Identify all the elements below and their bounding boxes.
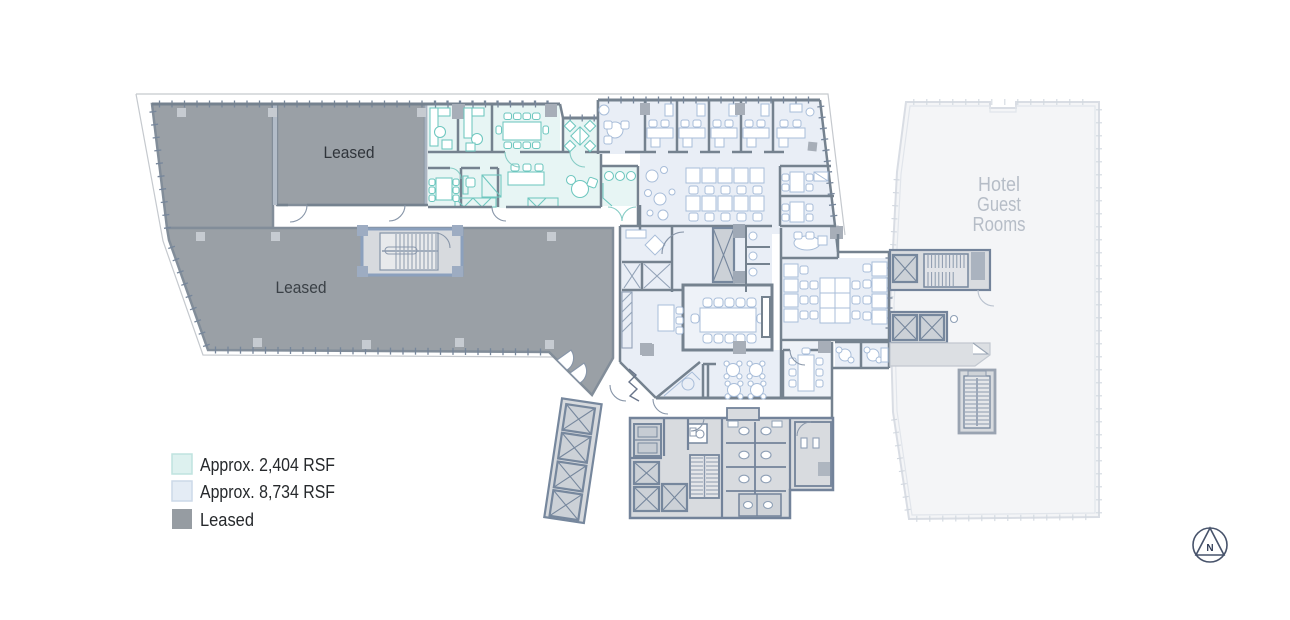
svg-text:Approx. 8,734 RSF: Approx. 8,734 RSF	[200, 482, 335, 502]
svg-text:Approx. 2,404 RSF: Approx. 2,404 RSF	[200, 455, 335, 475]
svg-text:Guest: Guest	[977, 194, 1021, 216]
svg-text:Leased: Leased	[200, 510, 254, 530]
svg-text:Leased: Leased	[276, 278, 327, 297]
svg-text:Hotel: Hotel	[978, 174, 1020, 196]
svg-text:Rooms: Rooms	[973, 214, 1026, 236]
svg-text:Leased: Leased	[324, 143, 375, 162]
svg-text:N: N	[1206, 543, 1213, 554]
